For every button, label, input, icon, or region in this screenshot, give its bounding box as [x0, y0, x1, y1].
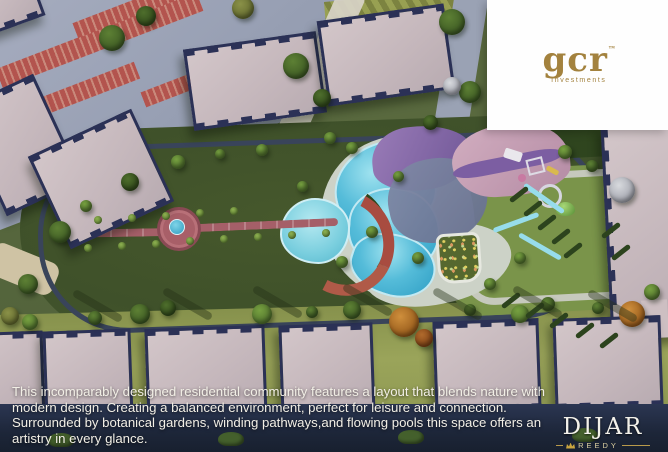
tree — [415, 329, 433, 347]
caption-line: modern design. Creating a balanced envir… — [12, 400, 564, 416]
bush — [152, 240, 160, 248]
dijar-sub-brand: REEDY — [578, 441, 619, 450]
tree — [22, 314, 38, 330]
tree — [80, 200, 92, 212]
bush — [196, 209, 204, 217]
caption-line: Surrounded by botanical gardens, winding… — [12, 415, 564, 431]
caption-line: artistry in every glance. — [12, 431, 564, 447]
building-roof — [552, 315, 663, 411]
brand-panel: gcr™ Investments — [487, 0, 668, 130]
tree — [439, 9, 465, 35]
bush — [84, 244, 92, 252]
community-garden — [435, 232, 482, 285]
tree — [586, 160, 598, 172]
tree — [313, 89, 331, 107]
description-overlay: This incomparably designed residential c… — [12, 384, 564, 446]
tree — [256, 144, 268, 156]
tree — [1, 307, 19, 325]
tree — [393, 171, 404, 182]
bush — [128, 214, 136, 222]
tree — [49, 221, 71, 243]
ornament-line — [556, 445, 563, 446]
bush — [288, 231, 296, 239]
tree — [484, 278, 496, 290]
tree — [130, 304, 150, 324]
bush — [322, 229, 330, 237]
tree — [346, 142, 358, 154]
tree — [459, 81, 481, 103]
dijar-logo: DIJAR REEDY — [544, 415, 662, 450]
tree — [423, 115, 438, 130]
gcr-logo-text: gcr — [543, 40, 608, 80]
tree — [88, 311, 102, 325]
tree — [160, 300, 176, 316]
tree — [99, 25, 125, 51]
gcr-logo: gcr™ Investments — [543, 46, 613, 84]
tree — [18, 274, 38, 294]
bush — [220, 235, 228, 243]
tree — [412, 252, 424, 264]
tree — [443, 77, 461, 95]
play-spot — [518, 174, 526, 182]
tree — [306, 306, 318, 318]
fountain — [169, 219, 185, 235]
caption-line: This incomparably designed residential c… — [12, 384, 564, 400]
tree — [297, 181, 308, 192]
tree — [389, 307, 419, 337]
tree — [514, 252, 526, 264]
tree — [324, 132, 336, 144]
tree — [252, 304, 272, 324]
dijar-ornament-row: REEDY — [544, 441, 662, 450]
tree — [136, 6, 156, 26]
tree — [343, 301, 361, 319]
tree — [283, 53, 309, 79]
bush — [254, 233, 262, 241]
tree — [558, 145, 572, 159]
tree — [171, 155, 185, 169]
building-roof — [317, 4, 456, 107]
tree — [336, 256, 348, 268]
masterplan-render-page: gcr™ Investments This incomparably desig… — [0, 0, 668, 452]
bush — [162, 212, 170, 220]
tree — [215, 149, 225, 159]
ornament-line — [622, 445, 650, 446]
bush — [94, 216, 102, 224]
tree — [644, 284, 660, 300]
tree — [121, 173, 139, 191]
tree — [609, 177, 635, 203]
gcr-tagline: Investments — [543, 77, 608, 84]
bush — [230, 207, 238, 215]
dijar-name: DIJAR — [544, 415, 662, 440]
crown-icon — [566, 443, 575, 449]
bush — [118, 242, 126, 250]
bush — [186, 237, 194, 245]
trademark-symbol: ™ — [608, 44, 616, 54]
tree — [366, 226, 378, 238]
